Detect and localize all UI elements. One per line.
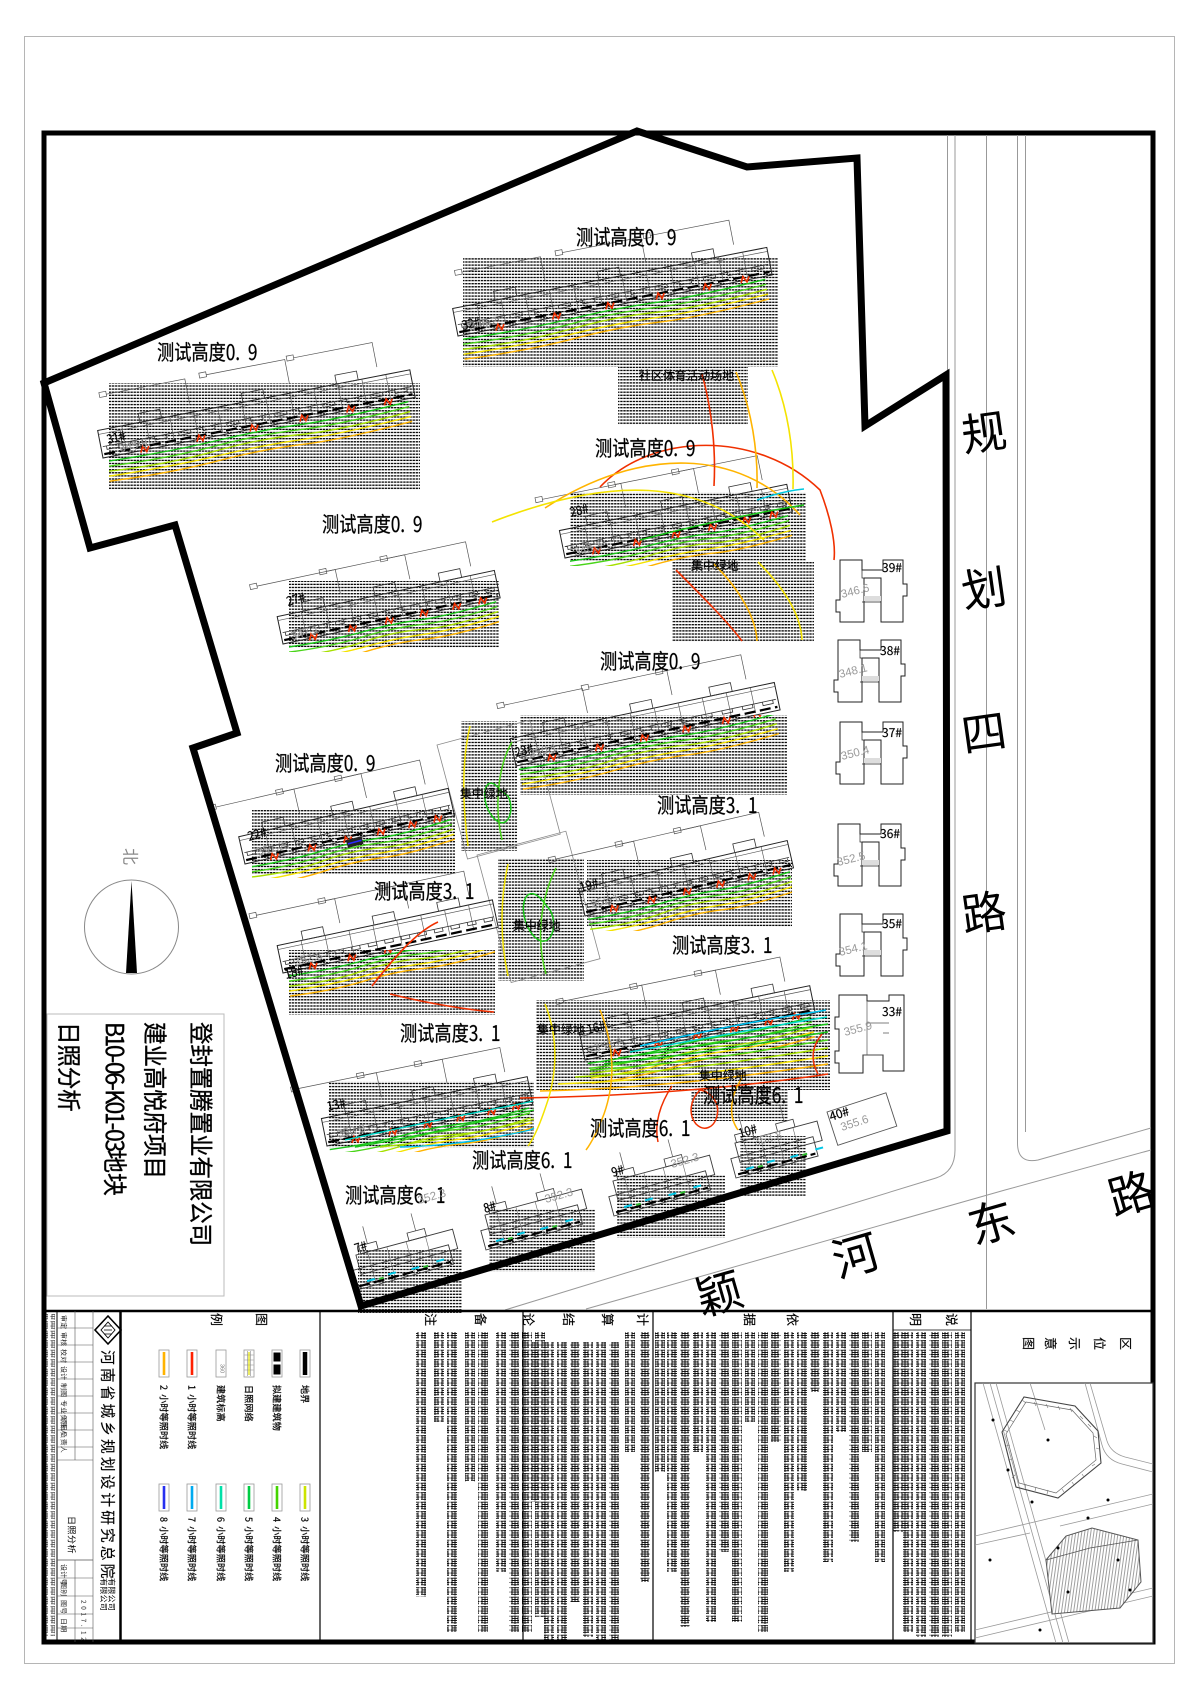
svg-text:360: 360 [219,1364,225,1373]
